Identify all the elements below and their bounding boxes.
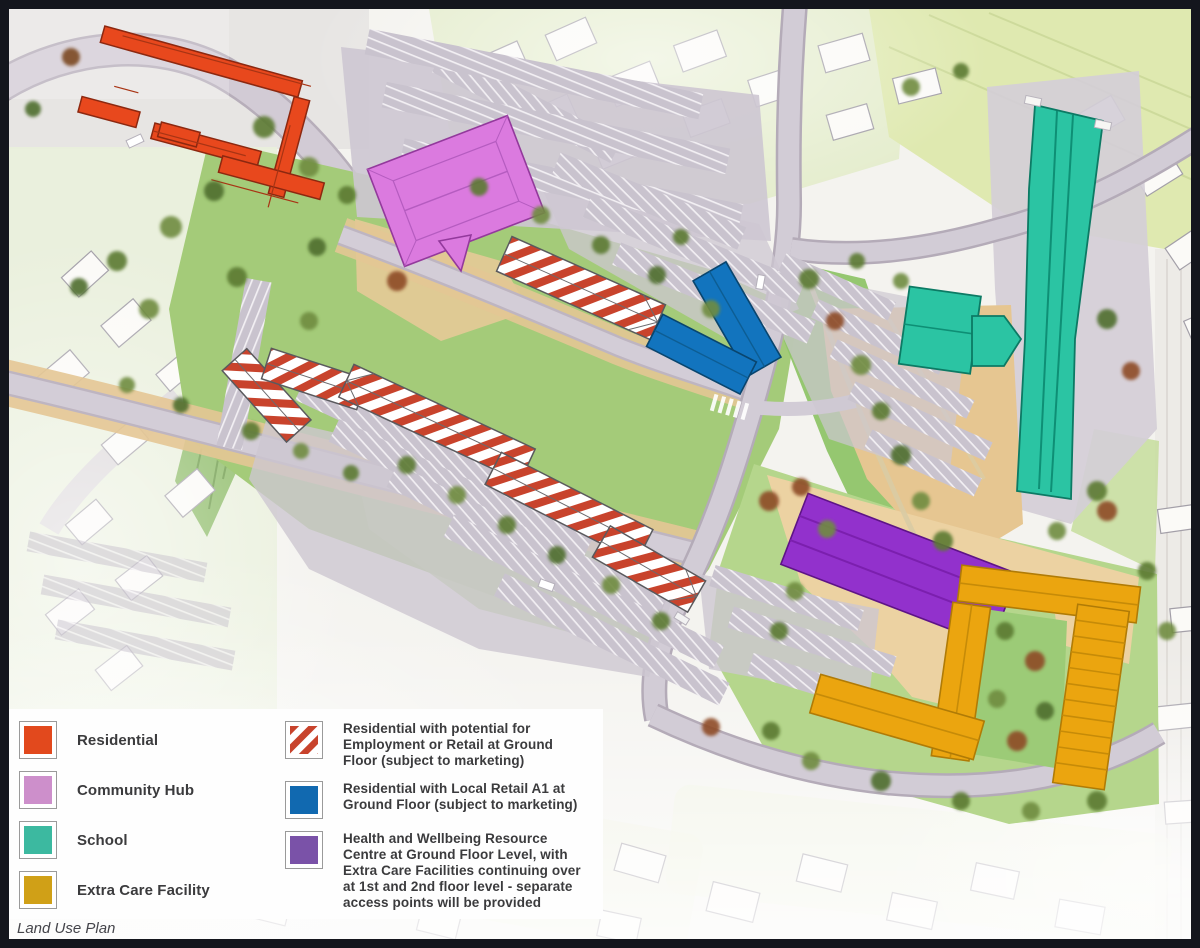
land-use-plan-map: Residential Community Hub School Extra C… — [9, 9, 1191, 939]
legend-label: Community Hub — [77, 782, 194, 799]
legend-item-retail-blue: Residential with Local Retail A1 at Grou… — [285, 781, 591, 819]
legend-column-1: Residential Community Hub School Extra C… — [19, 721, 267, 919]
striped-swatch — [290, 726, 318, 754]
legend-panel: Residential Community Hub School Extra C… — [9, 709, 603, 919]
map-caption: Land Use Plan — [17, 920, 115, 937]
legend-item-residential: Residential — [19, 721, 267, 759]
school-swatch — [24, 826, 52, 854]
plan-frame: Residential Community Hub School Extra C… — [0, 0, 1200, 948]
legend-item-school: School — [19, 821, 267, 859]
extra-care-swatch — [24, 876, 52, 904]
legend-swatch-frame — [19, 721, 57, 759]
legend-swatch-frame — [285, 831, 323, 869]
legend-label: Residential — [77, 732, 158, 749]
legend-label: School — [77, 832, 128, 849]
legend-item-community-hub: Community Hub — [19, 771, 267, 809]
legend-item-health-wellbeing: Health and Wellbeing Resource Centre at … — [285, 831, 591, 911]
legend-label: Extra Care Facility — [77, 882, 210, 899]
legend-swatch-frame — [285, 781, 323, 819]
legend-item-extra-care: Extra Care Facility — [19, 871, 267, 909]
legend-column-2: Residential with potential for Employmen… — [285, 721, 591, 919]
legend-item-striped-residential: Residential with potential for Employmen… — [285, 721, 591, 769]
residential-swatch — [24, 726, 52, 754]
retail-blue-swatch — [290, 786, 318, 814]
legend-label: Residential with potential for Employmen… — [343, 721, 591, 769]
legend-swatch-frame — [19, 771, 57, 809]
legend-swatch-frame — [285, 721, 323, 759]
health-purple-swatch — [290, 836, 318, 864]
legend-label: Health and Wellbeing Resource Centre at … — [343, 831, 591, 911]
community-hub-swatch — [24, 776, 52, 804]
legend-label: Residential with Local Retail A1 at Grou… — [343, 781, 591, 813]
legend-swatch-frame — [19, 821, 57, 859]
legend-swatch-frame — [19, 871, 57, 909]
